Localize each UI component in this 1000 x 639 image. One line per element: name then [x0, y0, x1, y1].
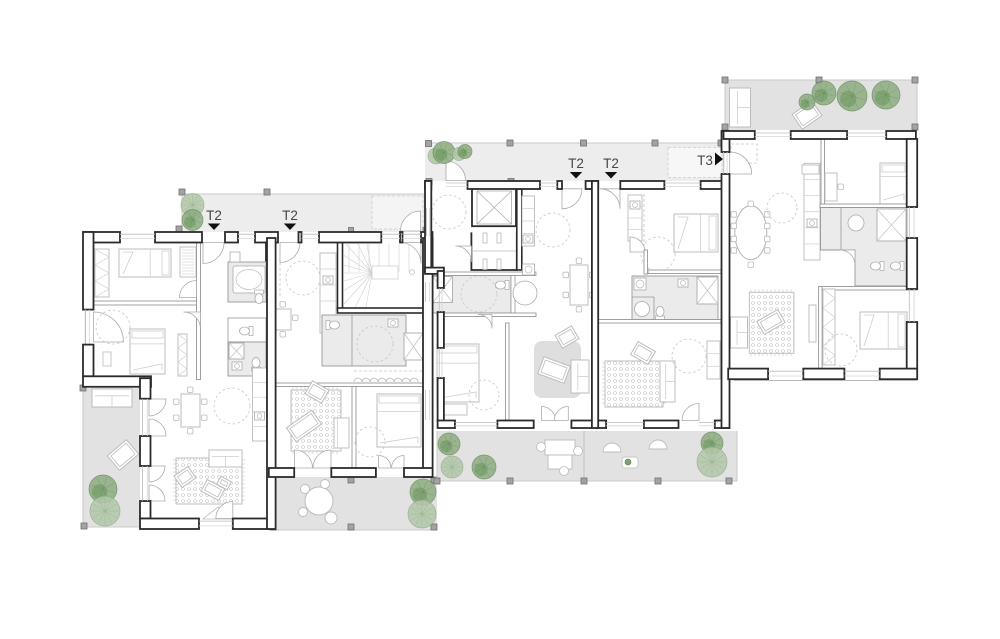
svg-text:T2: T2: [603, 156, 619, 171]
svg-text:T2: T2: [568, 156, 584, 171]
svg-text:T2: T2: [206, 208, 222, 223]
svg-text:T3: T3: [697, 153, 713, 168]
svg-text:T2: T2: [282, 208, 298, 223]
